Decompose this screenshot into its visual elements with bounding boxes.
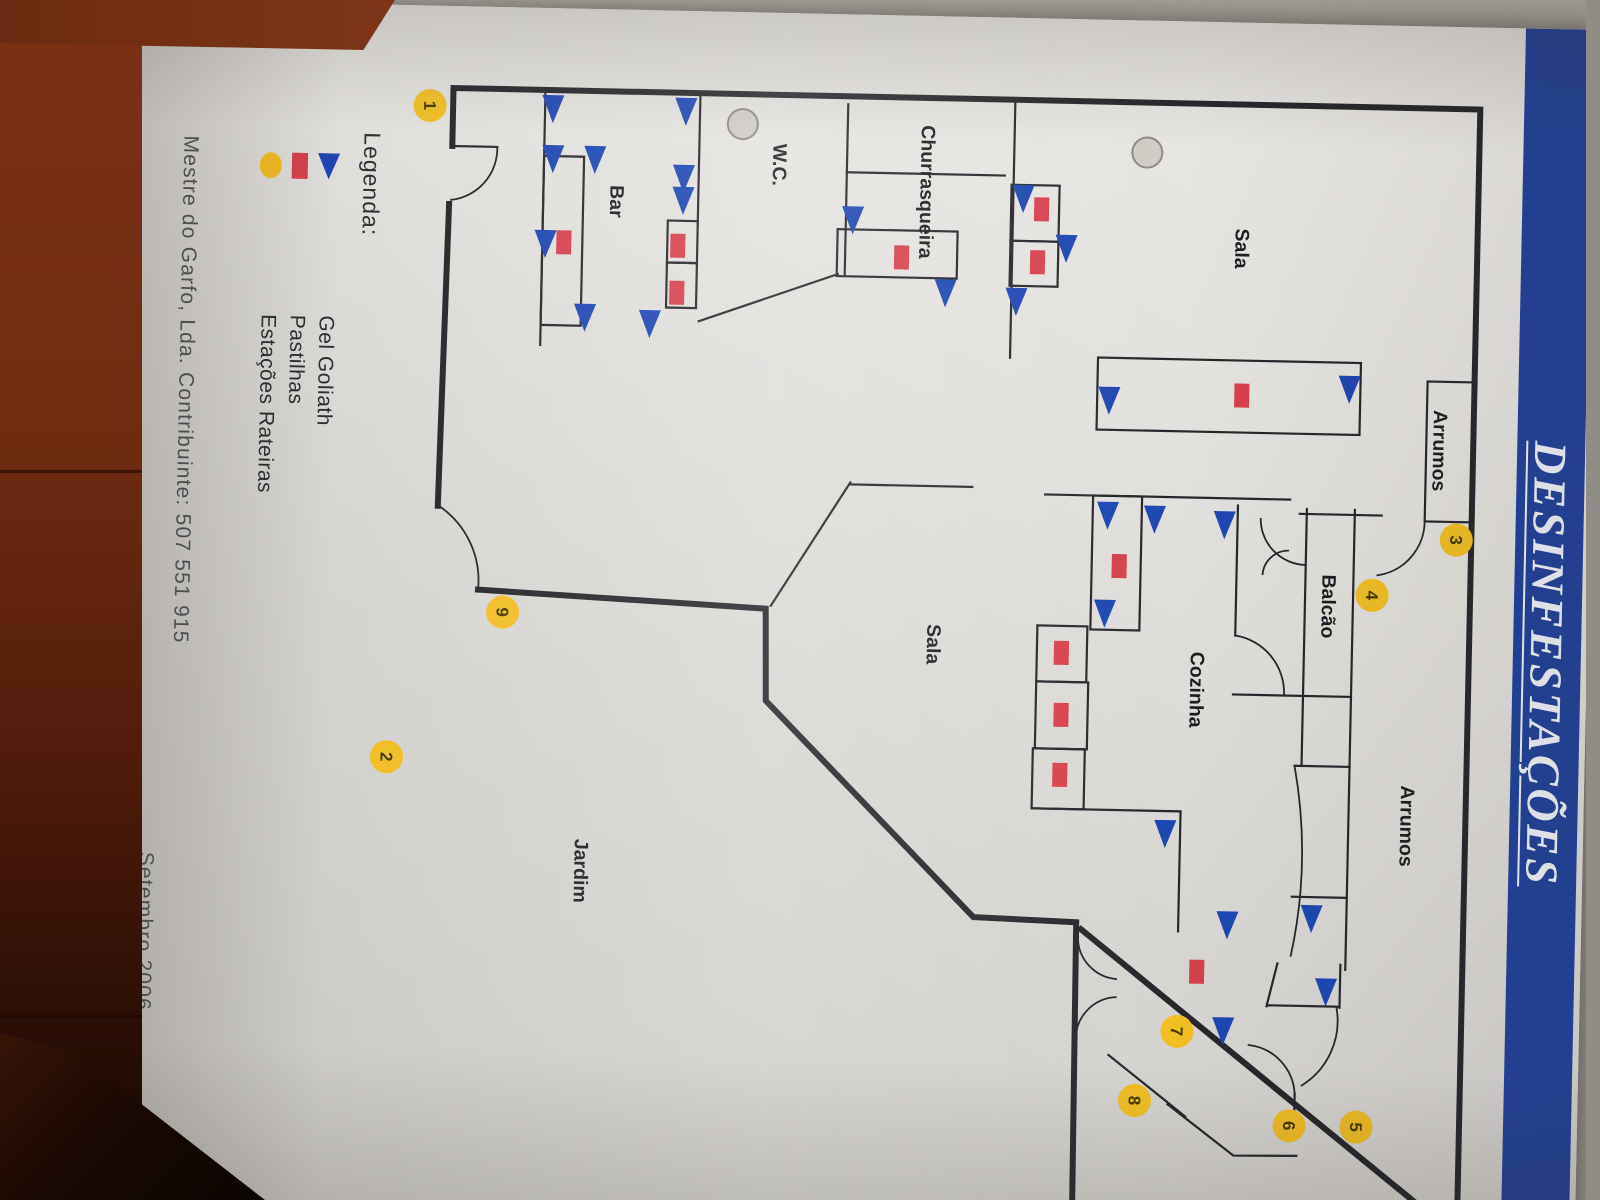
outer-wall [465, 590, 1085, 1200]
room-label-bar: Bar [605, 185, 628, 218]
rat-station-number-4: 4 [1362, 590, 1381, 600]
cabinet-box [1097, 358, 1361, 435]
legend-label: Estações Rateiras [252, 314, 280, 493]
photo-scene: DESINFESTAÇÕES SalaArrumosBalcãoCozinhaA… [0, 0, 1600, 1200]
legend-label: Gel Goliath [311, 315, 337, 426]
inner-wall [1268, 1005, 1340, 1007]
legend-rows: Gel GoliathPastilhasEstações Rateiras [245, 130, 343, 652]
rat-station-number-9: 9 [492, 607, 511, 617]
pastilhas-marker [1053, 703, 1068, 727]
gel-goliath-marker [1300, 905, 1323, 933]
triangle-icon [315, 153, 340, 187]
room-label-cozinha: Cozinha [1184, 652, 1208, 728]
gel-goliath-marker [934, 279, 957, 307]
room-label-churrasqueira: Churrasqueira [914, 125, 939, 259]
rat-station-number-6: 6 [1279, 1121, 1298, 1131]
gel-goliath-marker [1098, 387, 1121, 415]
legend-label: Pastilhas [283, 315, 309, 405]
gel-goliath-marker [573, 304, 596, 332]
gel-goliath-marker [534, 230, 557, 258]
tile-groove [0, 470, 142, 473]
inner-wall [1233, 694, 1351, 696]
gel-goliath-marker [1005, 288, 1028, 316]
inner-wall [1295, 766, 1350, 767]
rat-station-number-3: 3 [1446, 535, 1465, 545]
rat-station-number-5: 5 [1346, 1122, 1365, 1132]
pastilhas-marker [1111, 554, 1126, 578]
room-label-arrumos: Arrumos [1427, 410, 1451, 492]
pastilhas-marker [894, 245, 909, 269]
inner-wall [1235, 506, 1238, 636]
rat-station-number-7: 7 [1167, 1026, 1186, 1036]
door-arc [1076, 996, 1117, 1038]
door-arc [1301, 1007, 1338, 1087]
floor-tiles-top-left [0, 0, 395, 50]
inner-wall [1339, 965, 1340, 1008]
gel-goliath-marker [1213, 511, 1236, 539]
inner-wall [845, 104, 849, 274]
gel-goliath-marker [584, 146, 607, 174]
pastilhas-marker [670, 234, 685, 258]
gel-goliath-marker [1093, 600, 1116, 628]
pastilhas-marker [1052, 763, 1067, 787]
gel-goliath-marker [675, 98, 698, 126]
inner-wall [1266, 963, 1277, 1006]
inner-wall [452, 146, 497, 147]
pastilhas-marker [1054, 641, 1069, 665]
gel-goliath-marker [1096, 502, 1119, 530]
door-arc [437, 506, 480, 590]
room-label-wc: W.C. [768, 143, 791, 186]
outer-wall [430, 88, 1480, 1200]
room-label-sala: Sala [922, 624, 945, 665]
gel-goliath-marker [1154, 820, 1177, 848]
door-arc [1260, 518, 1307, 565]
rat-station-number-2: 2 [376, 752, 395, 762]
door-arc [1291, 766, 1304, 957]
inner-wall [699, 271, 838, 324]
inner-wall [771, 481, 851, 608]
inner-wall [1045, 494, 1290, 499]
inner-wall [1345, 510, 1355, 970]
pastilhas-marker [556, 230, 571, 254]
inner-wall [1300, 514, 1382, 516]
inner-wall [698, 93, 701, 224]
punch-hole [728, 109, 759, 140]
legend: Legenda: Gel GoliathPastilhasEstações Ra… [245, 130, 386, 653]
door-arc [1377, 520, 1425, 576]
gel-goliath-marker [1314, 978, 1337, 1006]
door-arc [1263, 550, 1290, 576]
square-icon [286, 153, 311, 187]
rat-station-number-8: 8 [1124, 1096, 1143, 1106]
outer-wall [1075, 929, 1441, 1200]
outer-wall [438, 204, 449, 506]
pastilhas-marker [1234, 383, 1249, 407]
floor-tiles-left [0, 0, 142, 1200]
door-arc [450, 146, 497, 201]
gel-goliath-marker [1143, 506, 1166, 534]
punch-hole [1132, 137, 1163, 168]
gel-goliath-marker [1338, 376, 1361, 404]
tile-groove [0, 1015, 142, 1018]
pastilhas-marker [1189, 960, 1204, 984]
room-label-balco: Balcão [1316, 574, 1339, 638]
pastilhas-marker [669, 281, 684, 305]
circle-icon [257, 152, 282, 186]
door-arc [1234, 635, 1285, 694]
document-paper: DESINFESTAÇÕES SalaArrumosBalcãoCozinhaA… [114, 0, 1600, 1200]
inner-wall [850, 484, 972, 487]
gel-goliath-marker [1012, 185, 1035, 213]
room-label-arrumos: Arrumos [1394, 785, 1418, 867]
pastilhas-marker [1034, 197, 1049, 221]
table-edge-right [1586, 0, 1600, 1200]
rat-station-number-1: 1 [420, 101, 439, 111]
room-label-sala: Sala [1230, 228, 1253, 269]
inner-wall [1302, 509, 1307, 764]
gel-goliath-marker [1216, 911, 1239, 939]
gel-goliath-marker [672, 187, 695, 215]
room-label-jardim: Jardim [569, 839, 592, 903]
gel-goliath-marker [638, 310, 661, 338]
pastilhas-marker [1030, 250, 1045, 274]
